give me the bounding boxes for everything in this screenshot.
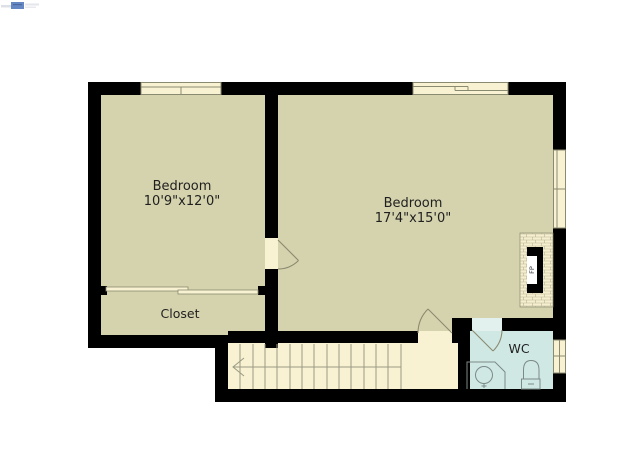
wall-bedroom-right-bottom — [228, 331, 418, 343]
bedroom-right-dimensions: 17'4"x15'0" — [375, 211, 451, 226]
wall-bottom — [215, 389, 566, 402]
wall-wc-top-left — [467, 318, 472, 331]
wall-wc-top-right — [502, 318, 553, 331]
floorplan-svg: FP — [0, 0, 640, 459]
wc-door-gap — [472, 318, 502, 331]
stair-hall-floor — [228, 343, 458, 389]
wall-between-bedrooms-upper — [265, 82, 278, 238]
window-wc-side — [554, 340, 566, 373]
wc-floor — [470, 330, 553, 389]
wall-left — [88, 82, 101, 348]
bedroom-right-label: Bedroom — [384, 196, 443, 211]
slider-panel-right — [178, 290, 258, 294]
closet-label: Closet — [161, 306, 200, 321]
fireplace: FP — [520, 233, 553, 307]
fireplace-label: FP — [528, 266, 536, 274]
window-bedroom-left-top — [141, 83, 221, 95]
window-bedroom-right-top — [413, 83, 508, 95]
interior-door-gap — [265, 238, 278, 269]
wall-slider-stub-right — [258, 286, 265, 295]
wall-right-upper — [553, 82, 566, 150]
bedroom-left-label: Bedroom — [153, 179, 212, 194]
window-bedroom-right-side — [554, 150, 566, 228]
wall-right-mid — [553, 228, 566, 340]
wall-closet-bottom — [88, 335, 228, 348]
bedroom-left-dimensions: 10'9"x12'0" — [144, 194, 220, 209]
slider-panel-left — [106, 287, 188, 291]
wc-label: WC — [508, 341, 529, 356]
floorplan-image: FP — [0, 0, 640, 459]
bedroom-door-gap — [418, 331, 452, 345]
